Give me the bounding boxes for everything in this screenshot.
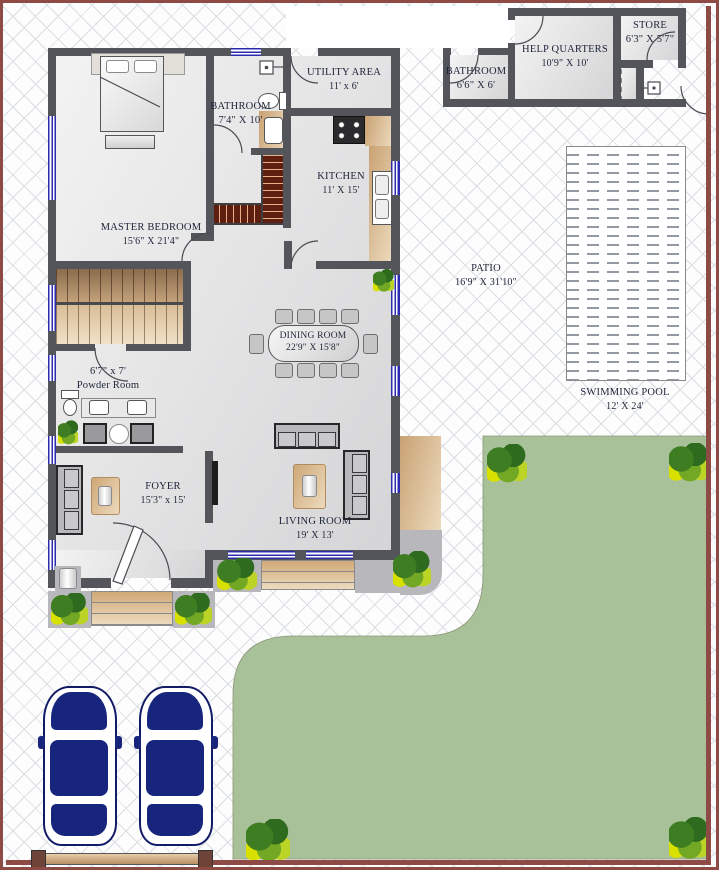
powder-toilet-icon — [63, 399, 77, 416]
plant-porch-left — [217, 558, 257, 591]
wall-bedroom-bathroom — [206, 56, 214, 241]
gate-post-right — [198, 850, 213, 869]
sink-basin-bottom — [375, 199, 389, 219]
stove-icon — [333, 116, 365, 144]
wall-foyer-bottom-b — [171, 578, 213, 588]
compound-wall-right — [706, 6, 711, 865]
room-label-utility: UTILITY AREA 11' x 6' — [294, 66, 394, 93]
room-label-powder: 6'7" x 7' Powder Room — [58, 365, 158, 392]
room-label-living: LIVING ROOM 19' X 13' — [265, 515, 365, 542]
service-stairs-vertical — [261, 153, 285, 225]
plant-entrance-right — [175, 593, 212, 626]
entrance-steps — [91, 591, 173, 626]
swimming-pool — [566, 146, 686, 381]
sofa-side — [343, 450, 370, 520]
powder-stool-right — [130, 423, 154, 444]
wall-hq-left-stub — [508, 8, 515, 20]
window-master-left — [48, 116, 56, 200]
foyer-planter — [59, 568, 77, 589]
plant-entrance-left — [51, 593, 88, 626]
window-dining-right-b — [391, 366, 400, 396]
room-label-kitchen: KITCHEN 11' X 15' — [291, 170, 391, 197]
staircase-upper-flight — [56, 269, 183, 305]
room-label-patio: PATIO 16'9" X 31'10" — [426, 262, 546, 289]
wall-kitchen-top — [291, 108, 398, 116]
passage-floor — [621, 68, 636, 99]
window-top — [231, 48, 261, 56]
wall-dining-top — [316, 261, 400, 269]
dining-chair — [341, 363, 359, 378]
dining-chair-end — [249, 334, 264, 354]
side-verandah — [400, 436, 441, 530]
powder-stool-left — [83, 423, 107, 444]
room-label-master-bedroom: MASTER BEDROOM 15'6" X 21'4" — [71, 221, 231, 248]
foyer-table — [98, 486, 112, 506]
room-label-help-bathroom: BATHROOM 6'6" X 6' — [431, 65, 521, 92]
wall-hq-bottom — [443, 99, 686, 107]
staircase-rail — [56, 302, 183, 305]
wall-passage-right — [636, 68, 644, 107]
kitchen-counter-top — [365, 116, 392, 146]
wall-bathroom-bottom — [251, 148, 283, 155]
window-living-right — [391, 473, 400, 493]
wall-powder-bottom — [48, 446, 183, 453]
window-living-bottom-b — [306, 551, 353, 559]
wall-top-c — [318, 48, 398, 56]
bed-bench — [105, 135, 155, 149]
room-label-foyer: FOYER 15'3" x 15' — [113, 480, 213, 507]
plant-dining-corner — [373, 269, 394, 293]
dining-chair — [275, 363, 293, 378]
living-porch-steps — [261, 560, 355, 590]
wall-bathroom-kitchen — [283, 56, 291, 228]
pillow-right — [134, 60, 157, 73]
dining-chair — [297, 363, 315, 378]
car-left — [43, 686, 117, 846]
wall-top-b — [261, 48, 291, 56]
pillow-left — [106, 60, 129, 73]
dining-chair — [319, 309, 337, 324]
dining-chair — [319, 363, 337, 378]
room-label-bathroom: BATHROOM 7'4" X 10' — [193, 100, 288, 127]
sofa-three-seat — [274, 423, 340, 449]
dining-chair — [297, 309, 315, 324]
wall-bedroom-bottom — [48, 261, 183, 269]
room-label-dining: DINING ROOM 22'9" X 15'8" — [263, 330, 363, 355]
foyer-sofa — [56, 465, 83, 535]
electrical-point-icon — [648, 82, 660, 94]
powder-round-table — [109, 424, 129, 444]
room-label-pool: SWIMMING POOL 12' X 24' — [555, 386, 695, 413]
wall-kitchen-door-jamb — [284, 241, 292, 269]
floor-plan-canvas: MASTER BEDROOM 15'6" X 21'4" BATHROOM 7'… — [0, 0, 719, 870]
dining-chair — [275, 309, 293, 324]
dining-chair-end — [363, 334, 378, 354]
wall-dining-left — [183, 261, 191, 351]
plant-lawn-bottom-left — [246, 819, 290, 863]
coffee-table — [302, 475, 317, 497]
wall-powder-top-b — [126, 344, 183, 351]
plant-lawn-top-right — [669, 443, 709, 483]
staircase-lower-flight — [56, 305, 183, 344]
gate-post-left — [31, 850, 46, 869]
window-powder-left — [48, 355, 56, 381]
walkway-help-quarters — [286, 6, 510, 48]
wall-hq-top — [508, 8, 686, 16]
room-label-store: STORE 6'3" X 5'7" — [605, 19, 695, 46]
powder-sink-left — [89, 400, 109, 415]
plant-walkway — [393, 551, 431, 589]
car-right — [139, 686, 213, 846]
plant-lawn-bottom-right — [669, 817, 709, 861]
window-stairs-left — [48, 285, 56, 331]
powder-sink-right — [127, 400, 147, 415]
window-foyer-left-a — [48, 436, 56, 464]
wall-powder-top-a — [48, 344, 95, 351]
plant-powder — [58, 420, 78, 446]
plant-lawn-top-left — [487, 444, 527, 484]
driveway-gate — [45, 853, 199, 865]
dining-chair — [341, 309, 359, 324]
window-kitchen-right — [391, 161, 400, 195]
